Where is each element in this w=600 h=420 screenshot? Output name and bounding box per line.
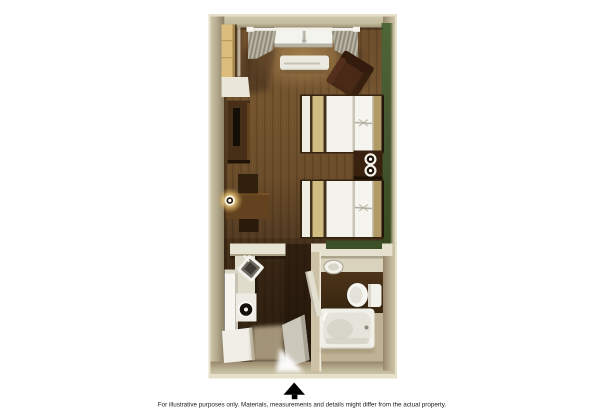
svg-text:For illustrative purposes only: For illustrative purposes only. Material…: [158, 402, 447, 409]
